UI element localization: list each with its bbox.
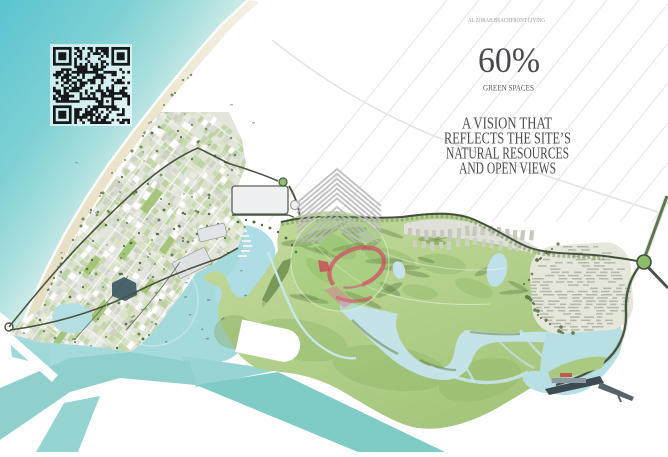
svg-text:60%: 60% (478, 40, 540, 80)
svg-text:AND OPEN VIEWS: AND OPEN VIEWS (459, 159, 556, 178)
svg-text:GREEN SPACES: GREEN SPACES (483, 83, 534, 93)
svg-text:AL ZORAH BEACHFRONT LIVING: AL ZORAH BEACHFRONT LIVING (468, 18, 546, 24)
